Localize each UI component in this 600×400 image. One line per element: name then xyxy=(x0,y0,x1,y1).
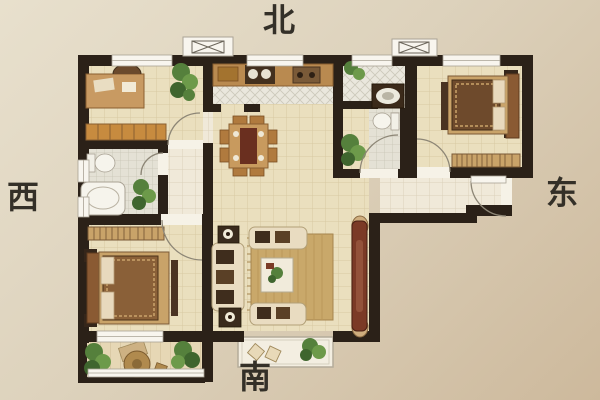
wall-study-south xyxy=(83,140,168,149)
corridor-floor-b xyxy=(168,149,203,214)
wall-living-south-left xyxy=(213,331,244,342)
wall-study-east-upper xyxy=(203,63,213,111)
wall-bath-north-stub xyxy=(333,101,378,109)
wall-bath-west-east-b xyxy=(158,175,168,220)
coffee-table xyxy=(261,258,293,292)
compass-north-label: 北 xyxy=(263,4,295,36)
compass-south-label: 南 xyxy=(239,361,271,393)
side-table xyxy=(218,226,239,243)
bed-icon xyxy=(84,249,178,327)
compass-west-label: 西 xyxy=(7,181,39,213)
bookshelf xyxy=(86,124,166,140)
dining-furniture xyxy=(220,116,277,176)
wardrobe-icon xyxy=(88,227,164,240)
window-icon xyxy=(78,160,89,182)
window-icon xyxy=(78,197,89,217)
wall-bedroom-master-north-a xyxy=(78,214,161,225)
tv-cabinet-icon xyxy=(352,216,368,337)
window-icon xyxy=(112,55,172,66)
wall-step-h2 xyxy=(466,205,512,216)
toilet-icon xyxy=(373,113,399,130)
wall-bath-north-east xyxy=(400,108,410,177)
wall-study-east-lower xyxy=(203,143,213,214)
wardrobe-icon xyxy=(452,154,520,167)
side-table xyxy=(219,308,241,327)
washer-icon xyxy=(372,84,404,108)
wall-bedroom-master-east xyxy=(202,214,213,342)
floor-plan-drawing xyxy=(0,0,600,400)
kitchen-furniture xyxy=(213,64,333,86)
wall-living-east xyxy=(369,213,380,342)
window-icon xyxy=(443,55,500,66)
corridor-floor-a xyxy=(203,111,213,143)
compass-east-label: 东 xyxy=(546,177,578,209)
wall-balcony-rail xyxy=(80,377,205,383)
floor-plan-image: 北 南 西 东 xyxy=(0,0,600,400)
bed-icon xyxy=(441,70,519,138)
flue-shafts xyxy=(183,37,437,56)
flue-shaft-icon xyxy=(392,39,437,56)
wall-kitchen-south-a xyxy=(203,104,221,112)
window-icon xyxy=(97,331,163,342)
window-icon xyxy=(88,369,204,377)
wall-east-upper xyxy=(522,55,533,178)
window-icon xyxy=(352,55,392,66)
flue-shaft-icon xyxy=(183,37,233,56)
wall-bedroom-master-south-a xyxy=(78,331,97,342)
entry-door-leaf xyxy=(471,176,506,183)
wall-kitchen-south-b xyxy=(244,104,260,112)
window-icon xyxy=(247,55,303,66)
toilet-icon xyxy=(87,154,115,172)
wall-step-h1 xyxy=(369,213,477,223)
